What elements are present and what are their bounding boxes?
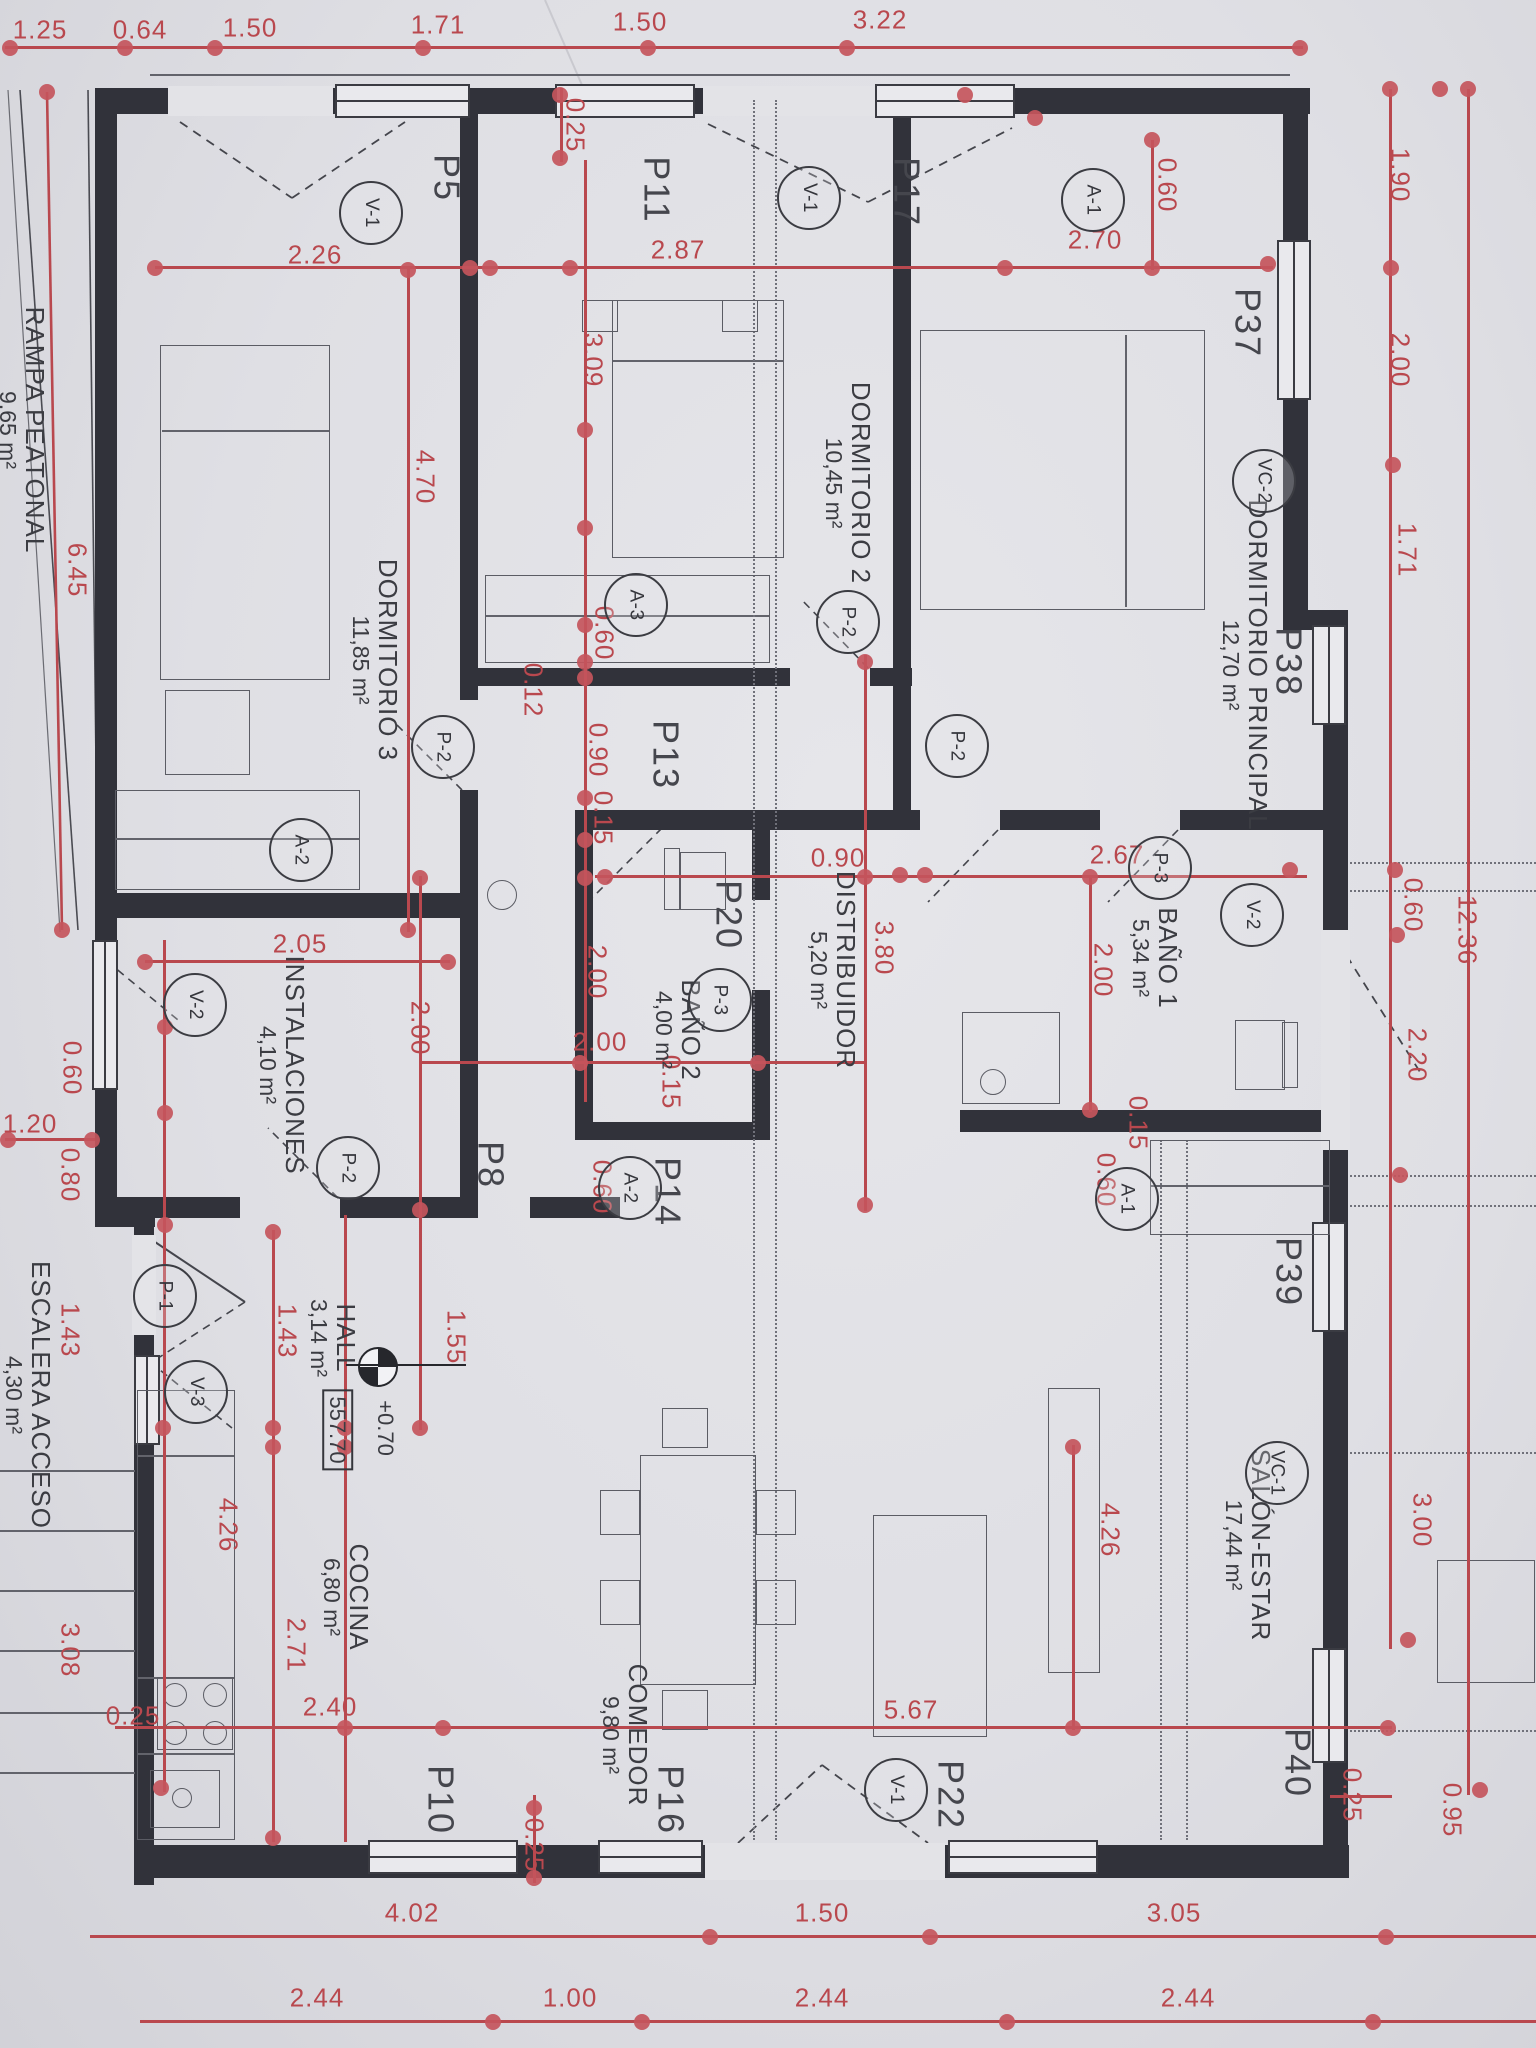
type-tag-label: V-2: [1241, 900, 1263, 930]
opening-label: P10: [422, 1765, 459, 1835]
room-name: ESCALERA ACCESO: [27, 1261, 54, 1529]
wall-opening: [168, 86, 333, 116]
room-label: COMEDOR9,80 m²: [599, 1664, 651, 1807]
type-tag-circle: A-1: [1095, 1167, 1159, 1231]
dimension-node: [1027, 110, 1043, 126]
type-tag-circle: A-1: [1061, 168, 1125, 232]
dimension-node: [265, 1830, 281, 1846]
dimension-node: [640, 40, 656, 56]
dimension-node: [265, 1439, 281, 1455]
dimension-node: [207, 40, 223, 56]
room-name: RAMPA PEATONAL: [21, 307, 48, 554]
type-tag-label: A-3: [625, 589, 647, 620]
type-tag-circle: V-1: [777, 166, 841, 230]
type-tag-circle: P-1: [133, 1264, 197, 1328]
wall: [960, 1110, 1350, 1132]
dimension-line: [140, 2020, 1536, 2023]
furniture: [640, 1455, 756, 1685]
opening-label: P16: [652, 1765, 689, 1835]
window-symbol: [1277, 240, 1311, 400]
room-name: COCINA: [345, 1543, 372, 1650]
dimension-node: [702, 1929, 718, 1945]
dimension-node: [1292, 40, 1308, 56]
level-marker-line: [346, 1364, 466, 1366]
dimension-label: 4.70: [412, 450, 439, 505]
dimension-label: 2.00: [584, 945, 611, 1000]
room-name: BAÑO 1: [1154, 907, 1181, 1008]
furniture: [1437, 1560, 1535, 1683]
opening-label: P13: [647, 720, 684, 790]
room-area: 5,34 m²: [1129, 907, 1152, 1008]
dimension-node: [412, 1420, 428, 1436]
room-label: BAÑO 15,34 m²: [1129, 907, 1181, 1008]
dimension-label: 0.25: [1339, 1768, 1366, 1823]
dimension-label: 0.60: [1400, 878, 1427, 933]
type-tag-label: P-3: [709, 984, 731, 1015]
dotted-guide-line: [1160, 1140, 1162, 1840]
dimension-label: 0.90: [585, 723, 612, 778]
type-tag-circle: VC-1: [1245, 1441, 1309, 1505]
dotted-guide-line: [1350, 1452, 1536, 1454]
floor-plan-canvas: 1.250.641.501.711.503.222.262.872.702.05…: [0, 0, 1536, 2048]
window-symbol: [875, 84, 1015, 118]
type-tag-circle: P-3: [688, 968, 752, 1032]
dimension-label: 1.25: [13, 17, 68, 44]
fixture-circle: [203, 1721, 227, 1745]
dotted-guide-line: [1186, 1140, 1188, 1840]
dimension-node: [577, 520, 593, 536]
opening-label: P17: [888, 157, 925, 227]
dimension-node: [440, 954, 456, 970]
dimension-line: [407, 268, 410, 932]
opening-label: P5: [428, 154, 465, 202]
dimension-label: 2.00: [1090, 943, 1117, 998]
dimension-label: 0.25: [106, 1703, 161, 1730]
dimension-label: 2.05: [273, 931, 328, 958]
room-area: 11,85 m²: [349, 559, 372, 761]
dimension-label: 0.95: [1439, 1783, 1466, 1838]
dimension-node: [415, 40, 431, 56]
dimension-node: [1400, 1632, 1416, 1648]
dimension-label: 1.43: [57, 1303, 84, 1358]
dimension-label: 3.80: [871, 921, 898, 976]
type-tag-label: A-2: [290, 834, 312, 865]
opening-label: P38: [1270, 627, 1307, 697]
furniture: [600, 1580, 640, 1625]
dimension-node: [462, 260, 478, 276]
dimension-node: [1065, 1439, 1081, 1455]
room-label: DISTRIBUIDOR5,20 m²: [807, 871, 859, 1069]
dimension-label: 1.43: [274, 1304, 301, 1359]
furniture: [612, 300, 784, 558]
type-tag-circle: P-2: [411, 715, 475, 779]
dimension-label: 0.64: [113, 17, 168, 44]
dimension-label: 2.40: [303, 1694, 358, 1721]
wall: [582, 810, 920, 830]
dimension-node: [526, 1870, 542, 1886]
dotted-guide-line: [1350, 1175, 1536, 1177]
dimension-label: 2.00: [573, 1029, 628, 1056]
dimension-node: [957, 87, 973, 103]
floor-plan-photo: 1.250.641.501.711.503.222.262.872.702.05…: [0, 0, 1536, 2048]
dimension-node: [1378, 1929, 1394, 1945]
dotted-guide-line: [1350, 1205, 1536, 1207]
dimension-label: 1.71: [411, 12, 466, 39]
type-tag-circle: A-2: [598, 1156, 662, 1220]
furniture: [165, 690, 250, 775]
type-tag-label: P-2: [946, 730, 968, 761]
opening-label: P39: [1270, 1237, 1307, 1307]
type-tag-label: A-1: [1082, 184, 1104, 215]
dimension-line: [90, 1935, 1536, 1938]
level-elevation: +0.70: [374, 1400, 396, 1456]
dimension-node: [562, 260, 578, 276]
type-tag-label: A-1: [1116, 1183, 1138, 1214]
dimension-node: [435, 1720, 451, 1736]
dimension-node: [552, 150, 568, 166]
dimension-node: [400, 262, 416, 278]
dimension-label: 2.44: [290, 1985, 345, 2012]
room-name: INSTALACIONES: [281, 955, 308, 1174]
furniture: [662, 1690, 708, 1730]
room-name: DORMITORIO 3: [374, 559, 401, 761]
furniture: [582, 300, 618, 332]
dimension-node: [1082, 1102, 1098, 1118]
dimension-label: 0.25: [521, 1818, 548, 1873]
dimension-node: [1365, 2014, 1381, 2030]
dimension-label: 12.36: [1454, 895, 1481, 965]
detail-line: [0, 1590, 135, 1592]
dimension-node: [634, 2014, 650, 2030]
dotted-guide-line: [1350, 890, 1536, 892]
type-tag-label: P-2: [337, 1152, 359, 1183]
type-tag-circle: V-2: [1220, 883, 1284, 947]
opening-label: P37: [1229, 288, 1266, 358]
type-tag-label: P-1: [154, 1280, 176, 1311]
type-tag-circle: V-2: [163, 973, 227, 1037]
dimension-node: [155, 1420, 171, 1436]
room-area: 9,80 m²: [599, 1664, 622, 1807]
furniture: [664, 848, 680, 910]
dimension-node: [412, 870, 428, 886]
type-tag-circle: P-2: [925, 714, 989, 778]
dimension-node: [1387, 862, 1403, 878]
type-tag-label: P-3: [1149, 852, 1171, 883]
dimension-node: [1065, 1720, 1081, 1736]
room-label: COCINA6,80 m²: [320, 1543, 372, 1650]
dotted-guide-line: [1350, 1730, 1536, 1732]
detail-line: [0, 1772, 135, 1774]
dimension-label: 0.90: [811, 845, 866, 872]
dimension-line: [420, 1061, 867, 1064]
dimension-node: [265, 1224, 281, 1240]
fixture-circle: [203, 1683, 227, 1707]
dimension-node: [482, 260, 498, 276]
dimension-node: [485, 2014, 501, 2030]
type-tag-circle: V-1: [339, 181, 403, 245]
type-tag-label: P-2: [432, 731, 454, 762]
dimension-label: 3.00: [1409, 1493, 1436, 1548]
room-label: ESCALERA ACCESO4,30 m²: [2, 1261, 54, 1529]
room-name: DORMITORIO PRINCIPAL: [1244, 499, 1271, 830]
dimension-node: [577, 670, 593, 686]
room-label: RAMPA PEATONAL9,65 m²: [0, 307, 48, 554]
room-area: 4,10 m²: [256, 955, 279, 1174]
dimension-label: 1.50: [223, 15, 278, 42]
room-label: DORMITORIO 311,85 m²: [349, 559, 401, 761]
dimension-node: [997, 260, 1013, 276]
room-label: INSTALACIONES4,10 m²: [256, 955, 308, 1174]
dimension-node: [337, 1720, 353, 1736]
dimension-label: 0.12: [520, 663, 547, 718]
dimension-node: [54, 922, 70, 938]
annotation-path: [928, 830, 998, 902]
dimension-node: [892, 867, 908, 883]
dimension-label: 1.50: [613, 9, 668, 36]
dimension-label: 0.25: [562, 98, 589, 153]
dimension-label: 2.44: [795, 1985, 850, 2012]
dimension-node: [857, 1197, 873, 1213]
dimension-node: [1382, 81, 1398, 97]
dimension-label: 2.00: [407, 1001, 434, 1056]
fixture-circle: [487, 880, 517, 910]
dimension-label: 2.20: [1404, 1028, 1431, 1083]
dimension-node: [84, 1132, 100, 1148]
type-tag-circle: A-2: [269, 818, 333, 882]
type-tag-circle: V-1: [864, 1758, 928, 1822]
type-tag-label: V-2: [184, 990, 206, 1020]
dimension-label: 0.15: [1125, 1096, 1152, 1151]
wall: [340, 1197, 460, 1218]
wall-opening: [703, 86, 875, 116]
dimension-node: [157, 1105, 173, 1121]
dimension-node: [39, 84, 55, 100]
window-symbol: [1312, 625, 1346, 725]
room-area: 3,14 m²: [307, 1299, 330, 1377]
type-tag-circle: V-3: [164, 1360, 228, 1424]
type-tag-label: V-3: [185, 1377, 207, 1407]
dimension-line: [163, 940, 166, 1792]
window-symbol: [948, 1840, 1098, 1874]
dimension-label: 2.87: [651, 237, 706, 264]
opening-label: P40: [1279, 1728, 1316, 1798]
dimension-node: [157, 1217, 173, 1233]
dimension-label: 5.67: [884, 1697, 939, 1724]
dimension-node: [572, 1055, 588, 1071]
furniture: [160, 345, 330, 680]
level-value: 557.70: [326, 1389, 348, 1470]
room-area: 4,30 m²: [2, 1261, 25, 1529]
dimension-node: [1385, 457, 1401, 473]
dimension-line: [595, 875, 1307, 878]
dimension-node: [1432, 81, 1448, 97]
furniture: [662, 1408, 708, 1448]
window-symbol: [1312, 1222, 1346, 1332]
room-area: 5,20 m²: [807, 871, 830, 1069]
fixture-circle: [980, 1069, 1006, 1095]
dimension-line: [419, 876, 422, 1430]
dimension-node: [526, 1800, 542, 1816]
room-label: DORMITORIO PRINCIPAL12,70 m²: [1219, 499, 1271, 830]
furniture: [920, 330, 1205, 610]
dimension-label: 0.15: [590, 791, 617, 846]
dimension-label: 4.02: [385, 1900, 440, 1927]
type-tag-label: VC-2: [1253, 458, 1275, 503]
dimension-label: 0.60: [1154, 158, 1181, 213]
dimension-label: 2.26: [288, 242, 343, 269]
dimension-label: 4.26: [1097, 1503, 1124, 1558]
type-tag-label: V-1: [885, 1775, 907, 1805]
dimension-label: 1.50: [795, 1900, 850, 1927]
dimension-node: [1260, 256, 1276, 272]
fixture-circle: [172, 1788, 192, 1808]
type-tag-label: A-2: [619, 1172, 641, 1203]
dimension-node: [922, 1929, 938, 1945]
dimension-node: [1392, 1167, 1408, 1183]
dimension-label: 3.05: [1147, 1900, 1202, 1927]
furniture: [756, 1490, 796, 1535]
dimension-node: [597, 869, 613, 885]
furniture: [722, 300, 758, 332]
dimension-node: [412, 1202, 428, 1218]
dimension-node: [1282, 862, 1298, 878]
dimension-node: [1144, 132, 1160, 148]
type-tag-label: VC-1: [1266, 1450, 1288, 1495]
dimension-node: [153, 1780, 169, 1796]
dimension-node: [577, 870, 593, 886]
dimension-label: 2.00: [1387, 333, 1414, 388]
window-symbol: [335, 84, 470, 118]
window-symbol: [598, 1840, 703, 1874]
room-area: 9,65 m²: [0, 307, 19, 554]
dimension-node: [857, 654, 873, 670]
dimension-node: [999, 2014, 1015, 2030]
furniture: [1282, 1022, 1298, 1088]
wall: [108, 1197, 240, 1218]
type-tag-circle: VC-2: [1232, 449, 1296, 513]
type-tag-circle: A-3: [604, 573, 668, 637]
dimension-line: [864, 655, 867, 1211]
opening-label: P8: [472, 1141, 509, 1189]
dimension-label: 1.71: [1394, 523, 1421, 578]
room-area: 4,00 m²: [652, 979, 675, 1080]
dimension-label: 1.20: [3, 1111, 58, 1138]
window-symbol: [368, 1840, 518, 1874]
fixture-circle: [163, 1721, 187, 1745]
wall: [1000, 810, 1100, 830]
dimension-line: [115, 1726, 1392, 1729]
room-area: 10,45 m²: [822, 382, 845, 584]
dimension-label: 4.26: [215, 1498, 242, 1553]
opening-label: P20: [710, 880, 747, 950]
opening-label: P22: [932, 1760, 969, 1830]
dimension-line: [1072, 1445, 1075, 1730]
dimension-node: [1460, 81, 1476, 97]
dimension-label: 3.08: [57, 1623, 84, 1678]
type-tag-circle: P-3: [1128, 836, 1192, 900]
dimension-label: 2.71: [283, 1618, 310, 1673]
dimension-node: [1472, 1782, 1488, 1798]
wall: [575, 1122, 770, 1140]
wall: [460, 790, 478, 918]
dimension-node: [265, 1420, 281, 1436]
wall-opening: [705, 1843, 945, 1880]
detail-line: [0, 1530, 135, 1532]
room-area: 17,44 m²: [1222, 1449, 1245, 1642]
type-tag-circle: P-2: [316, 1136, 380, 1200]
dimension-node: [147, 260, 163, 276]
room-name: DORMITORIO 2: [847, 382, 874, 584]
dimension-node: [137, 954, 153, 970]
dimension-label: 2.44: [1161, 1985, 1216, 2012]
dimension-label: 1.00: [543, 1985, 598, 2012]
dimension-label: 1.90: [1387, 148, 1414, 203]
type-tag-circle: P-2: [816, 590, 880, 654]
detail-line: [150, 74, 1290, 76]
dimension-label: 1.55: [443, 1310, 470, 1365]
furniture: [962, 1012, 1060, 1104]
level-marker-icon: [358, 1347, 398, 1387]
dimension-node: [839, 40, 855, 56]
room-name: DISTRIBUIDOR: [832, 871, 859, 1069]
dimension-node: [1380, 1720, 1396, 1736]
dimension-label: 0.80: [57, 1148, 84, 1203]
dimension-node: [1082, 869, 1098, 885]
dimension-label: 3.22: [853, 7, 908, 34]
dimension-node: [1144, 260, 1160, 276]
room-area: 6,80 m²: [320, 1543, 343, 1650]
type-tag-label: V-1: [798, 183, 820, 213]
dimension-node: [750, 1055, 766, 1071]
room-area: 12,70 m²: [1219, 499, 1242, 830]
dimension-node: [577, 422, 593, 438]
dotted-guide-line: [1350, 862, 1536, 864]
wall-opening: [1321, 930, 1350, 1150]
dimension-node: [917, 867, 933, 883]
dimension-label: 6.45: [64, 543, 91, 598]
dimension-node: [400, 922, 416, 938]
dimension-label: 3.09: [580, 333, 607, 388]
type-tag-label: P-2: [837, 606, 859, 637]
opening-label: P11: [638, 156, 675, 223]
fixture-circle: [163, 1683, 187, 1707]
dimension-node: [1383, 260, 1399, 276]
type-tag-label: V-1: [360, 198, 382, 228]
furniture: [1235, 1020, 1285, 1090]
furniture: [1150, 1140, 1330, 1235]
level-value-box: 557.70: [322, 1389, 353, 1470]
window-symbol: [92, 940, 118, 1090]
room-name: COMEDOR: [624, 1664, 651, 1807]
furniture: [756, 1580, 796, 1625]
dimension-label: 0.60: [59, 1041, 86, 1096]
furniture: [600, 1490, 640, 1535]
room-label: DORMITORIO 210,45 m²: [822, 382, 874, 584]
